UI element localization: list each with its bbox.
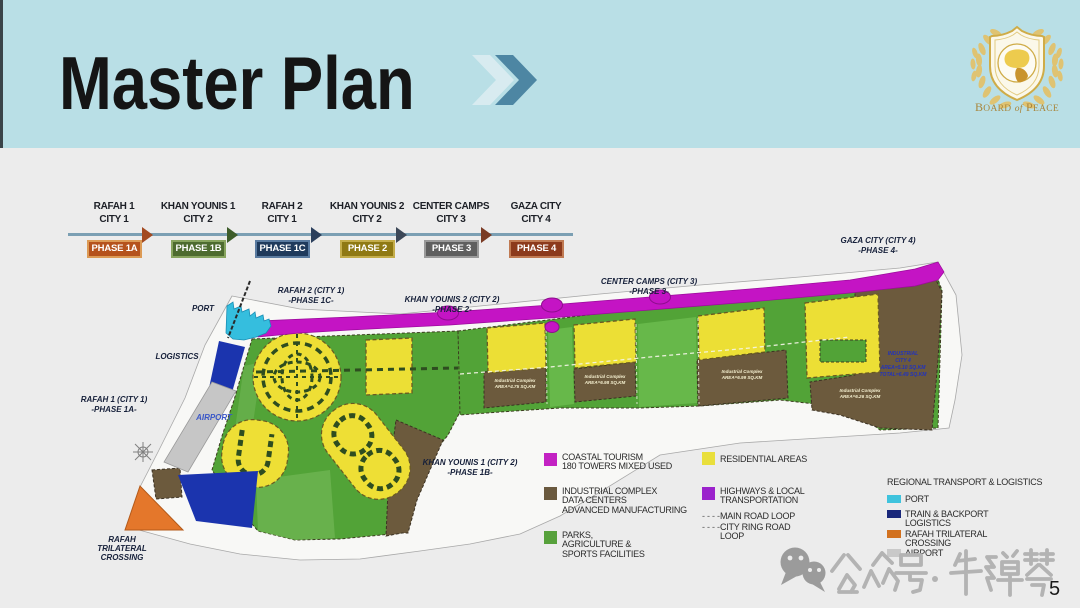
svg-text:KHAN YOUNIS 1 (CITY 2): KHAN YOUNIS 1 (CITY 2) <box>423 458 518 467</box>
svg-text:LOGISTICS: LOGISTICS <box>155 352 199 361</box>
svg-text:CROSSING: CROSSING <box>101 553 144 562</box>
svg-text:RAFAH: RAFAH <box>108 535 136 544</box>
svg-text:Industrial Complex: Industrial Complex <box>840 388 881 393</box>
svg-text:KHAN YOUNIS 2 (CITY 2): KHAN YOUNIS 2 (CITY 2) <box>405 295 500 304</box>
svg-text:-PHASE 2-: -PHASE 2- <box>432 305 472 314</box>
svg-text:BOARD of PEACE: BOARD of PEACE <box>975 100 1059 114</box>
svg-text:RAFAH 1 (CITY 1): RAFAH 1 (CITY 1) <box>81 395 148 404</box>
svg-text:AREA=6.99 SQ.KM: AREA=6.99 SQ.KM <box>721 375 763 380</box>
svg-text:CITY 4: CITY 4 <box>895 358 911 364</box>
svg-text:-PHASE 1C-: -PHASE 1C- <box>288 296 334 305</box>
svg-text:INDUSTRIAL: INDUSTRIAL <box>888 351 918 357</box>
svg-text:-PHASE 1B-: -PHASE 1B- <box>447 468 493 477</box>
svg-text:AREA=6.26 SQ.KM: AREA=6.26 SQ.KM <box>839 394 881 399</box>
svg-text:-PHASE 3-: -PHASE 3- <box>629 287 669 296</box>
svg-text:RAFAH 2 (CITY 1): RAFAH 2 (CITY 1) <box>278 286 345 295</box>
svg-text:PORT: PORT <box>192 304 215 313</box>
svg-text:-PHASE 1A-: -PHASE 1A- <box>91 405 137 414</box>
svg-text:Industrial Complex: Industrial Complex <box>722 369 763 374</box>
svg-text:CENTER CAMPS (CITY 3): CENTER CAMPS (CITY 3) <box>601 277 698 286</box>
svg-text:AREA=5.10 SQ.KM: AREA=5.10 SQ.KM <box>880 365 927 371</box>
svg-text:Industrial Complex: Industrial Complex <box>585 374 626 379</box>
svg-text:-PHASE 4-: -PHASE 4- <box>858 246 898 255</box>
svg-text:AREA=6.98 SQ.KM: AREA=6.98 SQ.KM <box>584 380 626 385</box>
svg-text:TOTAL=6.49 SQ.KM: TOTAL=6.49 SQ.KM <box>880 372 928 378</box>
svg-text:GAZA CITY (CITY 4): GAZA CITY (CITY 4) <box>841 236 916 245</box>
svg-text:AREA=4.75 SQ.KM: AREA=4.75 SQ.KM <box>494 384 536 389</box>
svg-text:Industrial Complex: Industrial Complex <box>495 378 536 383</box>
svg-text:TRILATERAL: TRILATERAL <box>97 544 147 553</box>
svg-text:AIRPORT: AIRPORT <box>195 413 233 422</box>
